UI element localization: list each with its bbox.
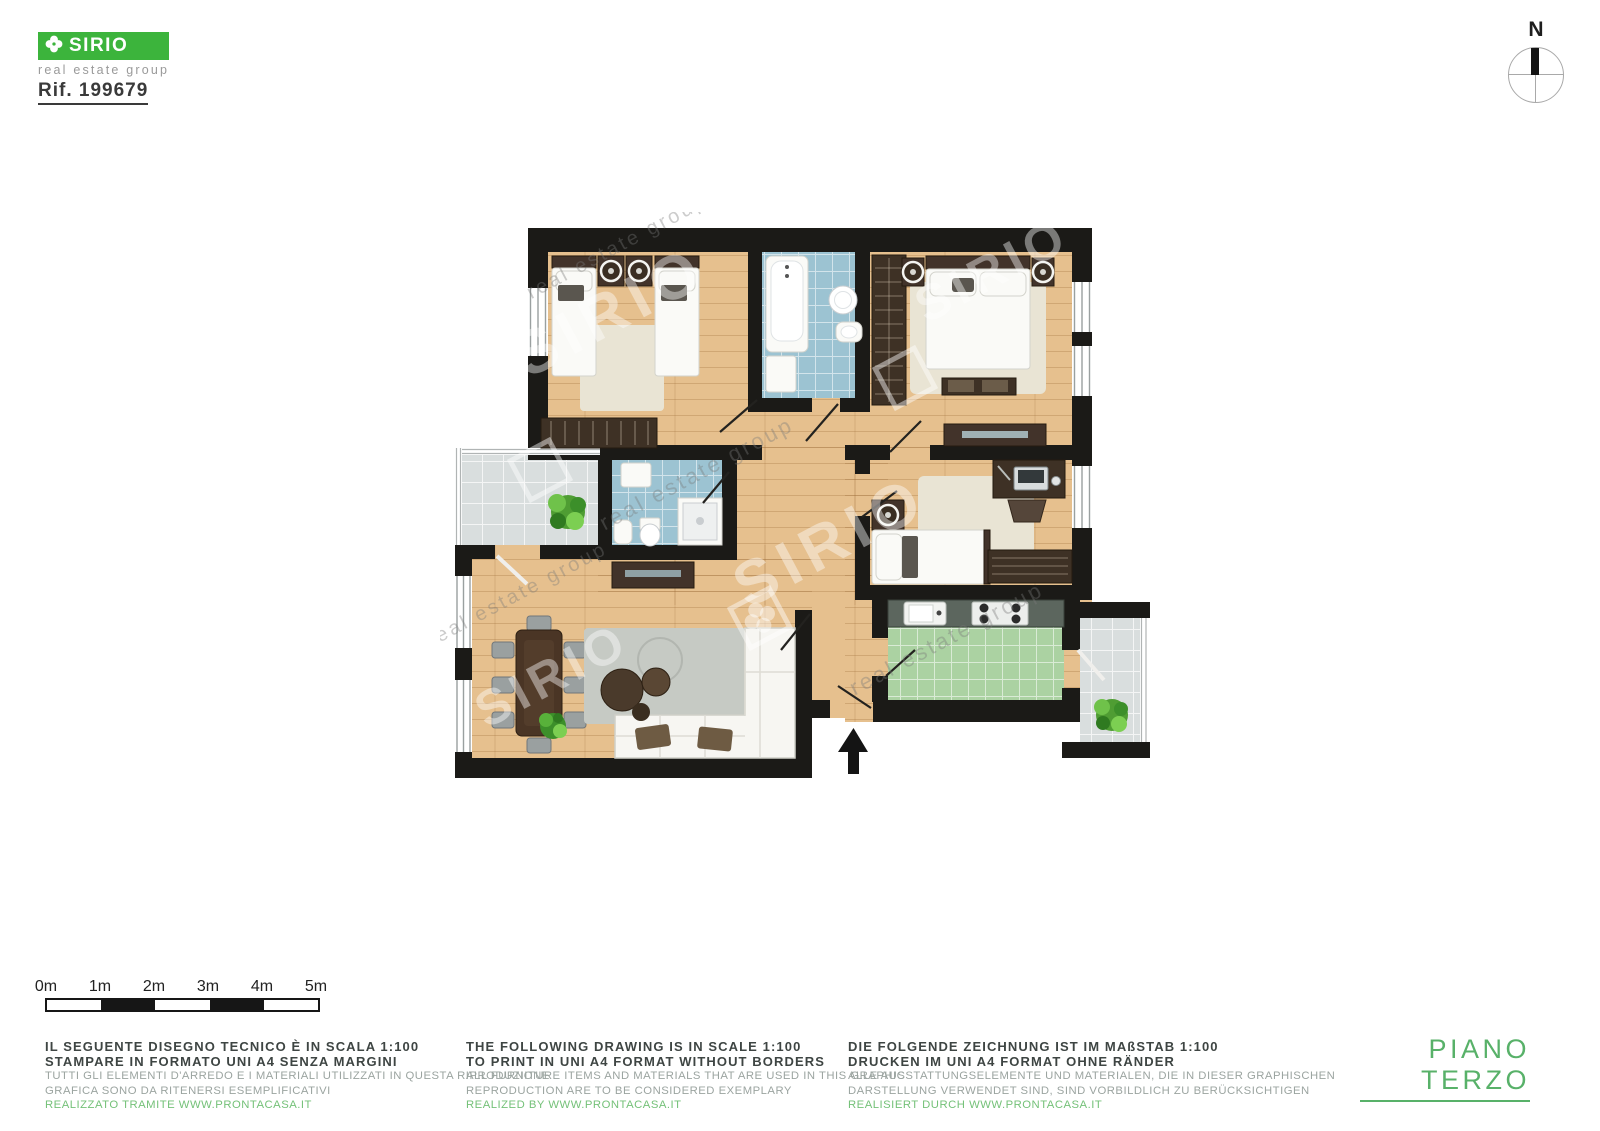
balcony-plant bbox=[1094, 699, 1128, 732]
entrance-arrow bbox=[838, 728, 868, 774]
north-compass: N bbox=[1496, 18, 1576, 108]
scale-label: 0m bbox=[19, 978, 73, 996]
scale-bar: 0m 1m 2m 3m 4m 5m bbox=[19, 978, 344, 1012]
disclaimer-line: REPRODUCTION ARE TO BE CONSIDERED EXEMPL… bbox=[466, 1084, 876, 1099]
bed-bench bbox=[942, 378, 1016, 395]
scale-label: 5m bbox=[289, 978, 343, 996]
disclaimer-line: IL SEGUENTE DISEGNO TECNICO È IN SCALA 1… bbox=[45, 1040, 455, 1055]
disclaimer-line: TO PRINT IN UNI A4 FORMAT WITHOUT BORDER… bbox=[466, 1055, 876, 1070]
reference-number: Rif. 199679 bbox=[38, 80, 148, 105]
bidet bbox=[836, 322, 862, 342]
scale-label: 1m bbox=[73, 978, 127, 996]
brand-logo: SIRIO real estate group Rif. 199679 bbox=[38, 32, 169, 105]
disclaimer-line: STAMPARE IN FORMATO UNI A4 SENZA MARGINI bbox=[45, 1055, 455, 1070]
disclaimer-line: THE FOLLOWING DRAWING IS IN SCALE 1:100 bbox=[466, 1040, 876, 1055]
bath-sink bbox=[766, 356, 796, 392]
scale-bar-segments bbox=[45, 998, 320, 1012]
disclaimer-italian: IL SEGUENTE DISEGNO TECNICO È IN SCALA 1… bbox=[45, 1040, 455, 1113]
compass-needle bbox=[1531, 48, 1539, 75]
logo-box: SIRIO bbox=[38, 32, 169, 60]
logo-tagline: real estate group bbox=[38, 63, 169, 77]
scale-labels: 0m 1m 2m 3m 4m 5m bbox=[19, 978, 344, 996]
clover-icon bbox=[44, 34, 64, 59]
disclaimer-line: DRUCKEN IM UNI A4 FORMAT OHNE RÄNDER bbox=[848, 1055, 1258, 1070]
disclaimer-line: ALLE AUSSTATTUNGSELEMENTE UND MATERIALEN… bbox=[848, 1069, 1258, 1084]
bath-sink bbox=[621, 463, 651, 487]
balcony-plant bbox=[548, 494, 586, 530]
disclaimer-line: DIE FOLGENDE ZEICHNUNG IST IM MAßSTAB 1:… bbox=[848, 1040, 1258, 1055]
disclaimer-german: DIE FOLGENDE ZEICHNUNG IST IM MAßSTAB 1:… bbox=[848, 1040, 1258, 1113]
wardrobe bbox=[872, 255, 906, 405]
disclaimer-link: REALIZZATO TRAMITE WWW.PRONTACASA.IT bbox=[45, 1098, 455, 1113]
scale-label: 3m bbox=[181, 978, 235, 996]
floor-label-text: PIANO TERZO bbox=[1360, 1034, 1530, 1102]
shower bbox=[678, 498, 722, 545]
wardrobe bbox=[988, 550, 1072, 583]
disclaimer-line: GRAFICA SONO DA RITENERSI ESEMPLIFICATIV… bbox=[45, 1084, 455, 1099]
kitchen-sink bbox=[904, 602, 946, 625]
disclaimer-line: TUTTI GLI ELEMENTI D'ARREDO E I MATERIAL… bbox=[45, 1069, 455, 1084]
logo-text: SIRIO bbox=[69, 35, 128, 57]
disclaimer-line: ALL FURNITURE ITEMS AND MATERIALS THAT A… bbox=[466, 1069, 876, 1084]
disclaimer-link: REALISIERT DURCH WWW.PRONTACASA.IT bbox=[848, 1098, 1258, 1113]
round-basin bbox=[829, 286, 857, 314]
floor-label: PIANO TERZO bbox=[1360, 1034, 1530, 1102]
floorplan-page: SIRIO real estate group Rif. 199679 N bbox=[0, 0, 1600, 1131]
bathtub bbox=[766, 256, 808, 352]
compass-north-label: N bbox=[1496, 18, 1576, 42]
floor-plan: SIRIO SIRIO SIRIO SIRIO real estate grou… bbox=[440, 212, 1160, 798]
sideboard bbox=[944, 424, 1046, 446]
dresser bbox=[541, 418, 657, 448]
toilet bbox=[640, 518, 660, 546]
scale-label: 4m bbox=[235, 978, 289, 996]
disclaimer-link: REALIZED BY WWW.PRONTACASA.IT bbox=[466, 1098, 876, 1113]
scale-label: 2m bbox=[127, 978, 181, 996]
disclaimer-line: DARSTELLUNG VERWENDET SIND, SIND VORBILD… bbox=[848, 1084, 1258, 1099]
disclaimer-english: THE FOLLOWING DRAWING IS IN SCALE 1:100 … bbox=[466, 1040, 876, 1113]
tv-sideboard bbox=[612, 562, 694, 588]
